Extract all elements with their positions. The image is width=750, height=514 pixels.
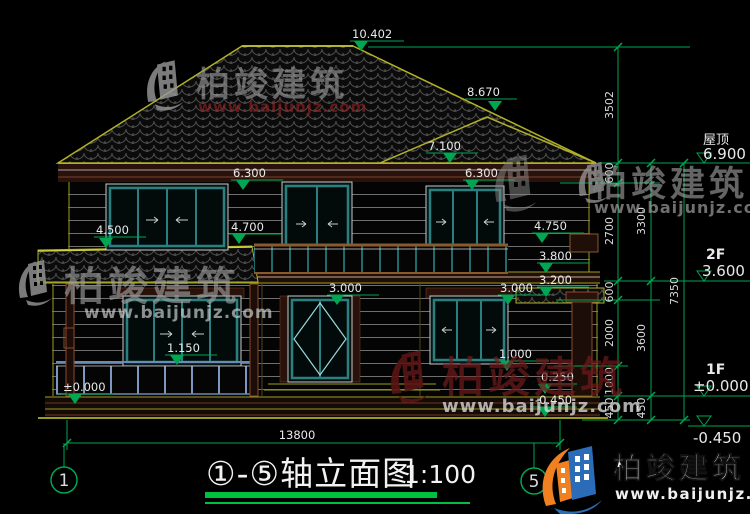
watermark-url: www.baijunjz.com xyxy=(594,198,750,217)
dim-text: 7350 xyxy=(668,277,681,305)
drawing-title: ①-⑤轴立面图 xyxy=(206,454,416,493)
drawing-scale: 1:100 xyxy=(404,460,476,489)
brand-logo-name: 柏竣建筑 xyxy=(613,451,745,485)
level-value: 3.000 xyxy=(500,281,533,295)
level-value: 6.300 xyxy=(233,166,266,180)
second-floor-right-window xyxy=(426,186,504,250)
brand-logo-url: www.baijunjz.com xyxy=(615,485,750,503)
roof-level-value: 6.900 xyxy=(703,145,746,163)
watermark-url: www.baijunjz.com xyxy=(198,98,367,116)
watermark-url: www.baijunjz.com xyxy=(442,396,642,417)
axis-number: 1 xyxy=(59,471,70,491)
level-value: 8.670 xyxy=(467,85,500,99)
dimension-chain-outer: 7350 xyxy=(668,277,681,305)
floor1-level-value: ±0.000 xyxy=(693,377,749,395)
brand-logo-icon xyxy=(543,446,602,514)
level-value: ±0.000 xyxy=(63,380,106,394)
ground-level-value: -0.450 xyxy=(693,429,741,447)
dim-text: 3600 xyxy=(635,324,648,352)
title-block: ①-⑤轴立面图 1:100 xyxy=(205,454,476,503)
level-value: 1.150 xyxy=(167,341,200,355)
overall-width-dim: 13800 xyxy=(279,428,316,442)
dim-text: 3502 xyxy=(603,91,616,119)
second-floor-left-window xyxy=(106,184,228,250)
entry-door xyxy=(280,296,360,382)
level-value: 4.750 xyxy=(534,219,567,233)
brand-logo: 柏竣建筑 www.baijunjz.com xyxy=(543,446,750,514)
cad-elevation-drawing: 3502 600 2700 600 2000 1000 450 3300 360… xyxy=(0,0,750,514)
level-value: 6.300 xyxy=(465,166,498,180)
watermark-top-right: 柏竣建筑 www.baijunjz.com xyxy=(579,162,750,217)
drawing-surface: 3502 600 2700 600 2000 1000 450 3300 360… xyxy=(0,0,750,514)
axis-number: 5 xyxy=(529,472,540,492)
title-underline-thick xyxy=(205,492,437,498)
floor2-level-value: 3.600 xyxy=(702,262,745,280)
level-value: 10.402 xyxy=(352,27,392,41)
level-value: 3.800 xyxy=(539,249,572,263)
dim-text: 600 xyxy=(603,282,616,303)
level-value: 4.700 xyxy=(231,220,264,234)
floor2-label: 2F xyxy=(706,247,725,263)
dim-text: 2000 xyxy=(603,319,616,347)
level-value: 3.200 xyxy=(539,273,572,287)
level-value: 4.500 xyxy=(96,223,129,237)
floor1-label: 1F xyxy=(706,362,725,378)
level-value: 7.100 xyxy=(428,139,461,153)
watermark-brand: 柏竣建筑 xyxy=(442,353,626,402)
axis-bubble-1: 1 xyxy=(51,467,77,493)
dim-text: 2700 xyxy=(603,217,616,245)
level-value: 3.000 xyxy=(329,281,362,295)
watermark-url: www.baijunjz.com xyxy=(84,303,274,323)
dimension-chain-mid: 3300 3600 450 xyxy=(635,207,648,419)
